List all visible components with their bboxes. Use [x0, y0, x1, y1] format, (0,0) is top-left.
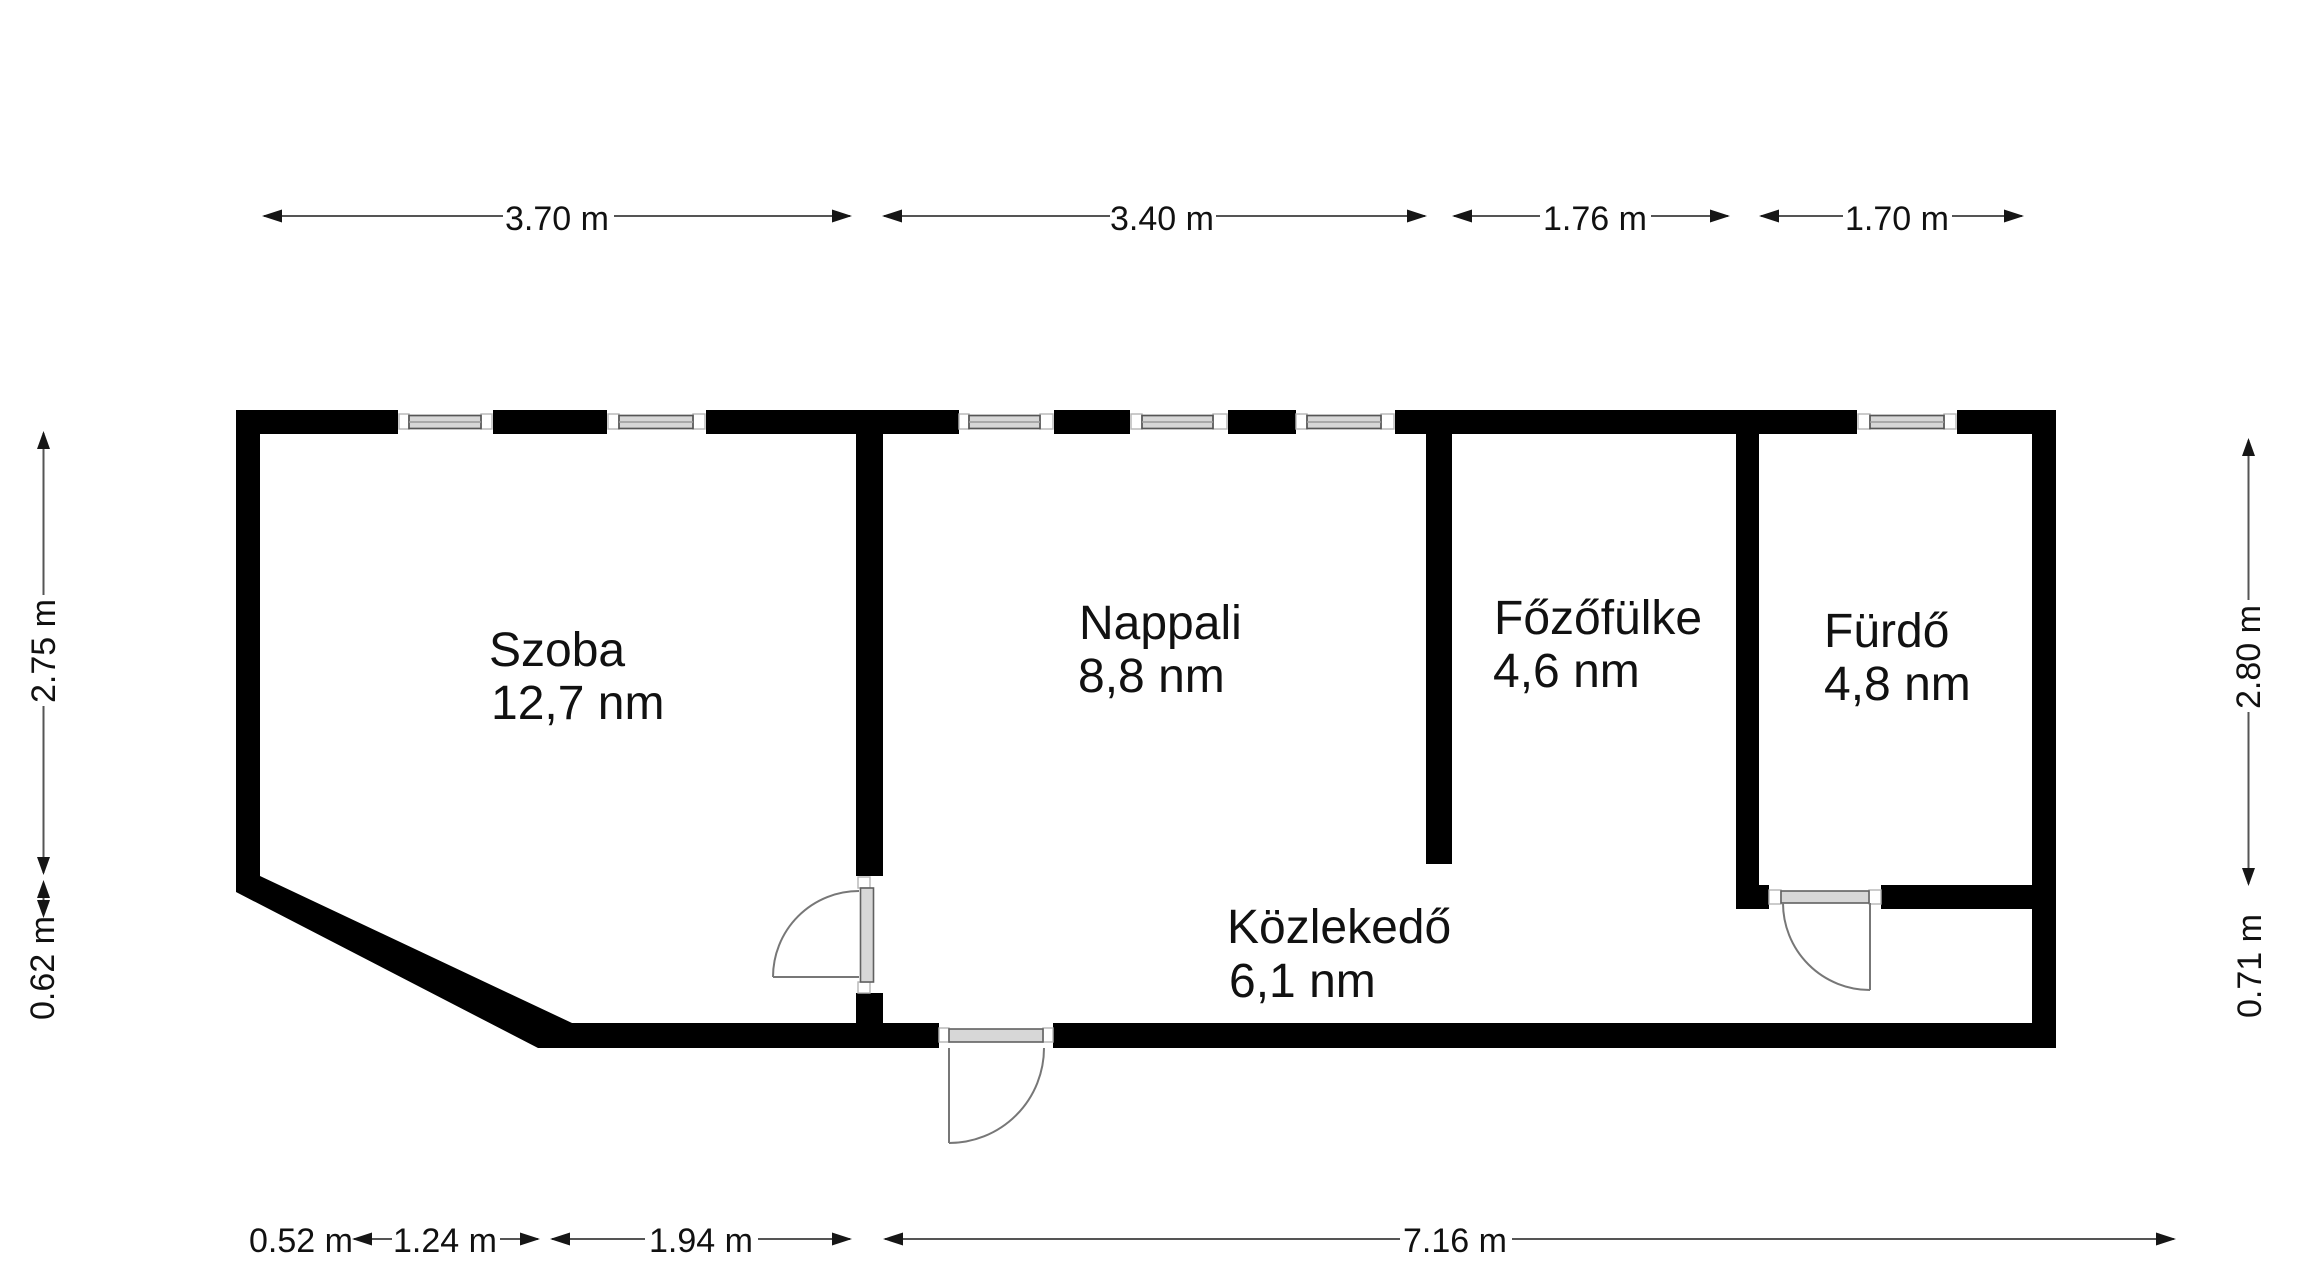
svg-text:2.75 m: 2.75 m [25, 599, 63, 703]
svg-text:8,8 nm: 8,8 nm [1078, 650, 1225, 703]
svg-text:0.71 m: 0.71 m [2231, 914, 2269, 1018]
svg-text:3.70 m: 3.70 m [505, 200, 609, 238]
svg-text:0.62 m: 0.62 m [24, 916, 62, 1020]
svg-text:0.52 m: 0.52 m [249, 1222, 353, 1260]
svg-text:1.76 m: 1.76 m [1543, 200, 1647, 238]
svg-text:6,1 nm: 6,1 nm [1229, 955, 1376, 1008]
svg-text:1.24 m: 1.24 m [393, 1222, 497, 1260]
svg-text:4,8 nm: 4,8 nm [1824, 658, 1971, 711]
svg-text:Nappali: Nappali [1079, 597, 1242, 650]
svg-text:Közlekedő: Közlekedő [1227, 901, 1451, 954]
svg-text:12,7 nm: 12,7 nm [491, 677, 664, 730]
svg-text:2.80 m: 2.80 m [2230, 605, 2268, 709]
svg-text:7.16 m: 7.16 m [1403, 1222, 1507, 1260]
svg-text:3.40 m: 3.40 m [1110, 200, 1214, 238]
svg-text:Fürdő: Fürdő [1824, 605, 1949, 658]
svg-text:1.70 m: 1.70 m [1845, 200, 1949, 238]
svg-text:Főzőfülke: Főzőfülke [1494, 592, 1702, 645]
svg-text:Szoba: Szoba [489, 624, 625, 677]
svg-text:4,6 nm: 4,6 nm [1493, 645, 1640, 698]
svg-text:1.94 m: 1.94 m [649, 1222, 753, 1260]
